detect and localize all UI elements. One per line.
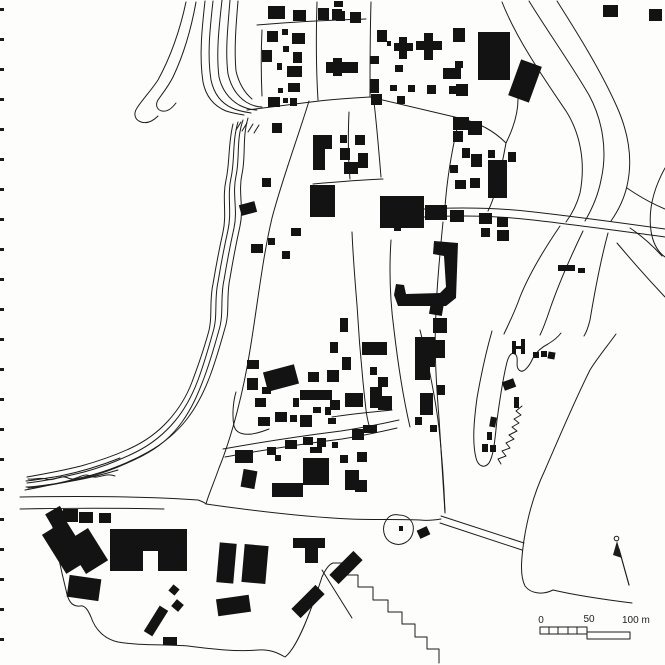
building-footprint — [290, 98, 297, 106]
building-footprint — [275, 412, 287, 422]
street-east-top — [370, 97, 506, 143]
building-footprint — [390, 85, 397, 91]
west-bank-1 — [25, 118, 248, 490]
building-footprint — [342, 357, 351, 370]
building-footprint — [340, 455, 348, 463]
scale-bar-ticks — [549, 627, 577, 634]
building-footprint — [417, 526, 431, 539]
building-footprint — [325, 407, 331, 415]
edge-tick — [0, 338, 4, 341]
river-stem-5 — [235, 1, 252, 99]
building-footprint — [262, 387, 271, 394]
street-top-row — [257, 19, 366, 25]
building-footprint — [471, 154, 482, 167]
river-east-upper-1 — [502, 2, 582, 222]
building-footprint — [453, 117, 469, 130]
road-to-loop — [206, 504, 441, 520]
street-left-col — [261, 30, 262, 96]
building-footprint — [340, 135, 347, 143]
page-edge-tick-marks — [0, 8, 4, 641]
building-footprint — [291, 228, 301, 236]
edge-tick — [0, 218, 4, 221]
river-stem-1 — [201, 1, 244, 115]
building-footprint — [313, 135, 332, 149]
town-plan-map: 0 50 100 m — [0, 0, 665, 665]
river-fork-left-outer — [135, 2, 186, 123]
edge-tick — [0, 578, 4, 581]
building-footprint — [272, 123, 282, 133]
building-footprint — [216, 595, 251, 616]
edge-tick — [0, 548, 4, 551]
building-footprint — [362, 342, 387, 355]
building-footprint — [394, 224, 401, 231]
building-footprint — [649, 9, 662, 21]
building-footprint — [355, 480, 367, 492]
building-footprint — [481, 228, 490, 237]
building-footprint — [468, 121, 482, 135]
building-footprint — [277, 63, 282, 70]
building-footprint — [420, 393, 433, 415]
right-edge-curve — [650, 168, 665, 257]
building-footprint — [479, 213, 492, 224]
building-footprint — [308, 372, 319, 382]
building-footprint — [370, 79, 379, 93]
building-footprint — [450, 165, 458, 173]
building-footprint — [247, 378, 258, 390]
building-footprint — [370, 367, 377, 375]
building-footprint — [514, 397, 519, 408]
building-footprint — [345, 393, 363, 407]
scale-bar-segment-1 — [540, 627, 587, 634]
river-east-upper-3 — [557, 1, 630, 221]
building-footprint — [470, 178, 480, 188]
edge-tick — [0, 488, 4, 491]
edge-tick — [0, 188, 4, 191]
building-footprint — [487, 432, 492, 440]
building-footprint — [340, 318, 348, 332]
building-footprint — [541, 351, 547, 357]
building-footprint — [415, 417, 422, 425]
building-footprint — [456, 84, 468, 96]
building-footprint — [482, 444, 488, 452]
building-footprint — [430, 425, 437, 432]
building-footprint — [478, 32, 510, 80]
building-footprint — [79, 512, 93, 523]
building-footprint — [67, 575, 102, 601]
building-footprint — [334, 1, 343, 7]
edge-tick — [0, 68, 4, 71]
building-footprint — [255, 398, 266, 407]
building-footprint — [488, 160, 507, 198]
building-footprint — [429, 301, 444, 316]
building-footprint — [558, 265, 575, 271]
street-v2-mid — [352, 232, 357, 305]
scale-label-fifty: 50 — [583, 614, 595, 625]
edge-tick — [0, 278, 4, 281]
building-footprint — [433, 318, 447, 333]
street-h180 — [313, 179, 383, 184]
building-footprint — [163, 637, 177, 645]
building-footprint — [313, 407, 321, 413]
field-boundary — [522, 334, 633, 603]
building-footprint — [508, 59, 542, 102]
building-footprint — [63, 509, 78, 522]
building-footprint — [453, 28, 465, 42]
building-footprint — [258, 417, 270, 426]
building-footprint — [268, 238, 275, 245]
building-footprint — [488, 150, 495, 158]
edge-tick — [0, 638, 4, 641]
building-footprint — [291, 585, 324, 618]
road-bottom-1 — [20, 496, 206, 504]
edge-tick — [0, 248, 4, 251]
building-footprint — [489, 417, 497, 428]
building-footprint — [332, 9, 342, 20]
causeway-1 — [441, 516, 524, 543]
building-footprint — [288, 83, 300, 92]
north-arrow — [613, 536, 629, 585]
factory-e-building — [110, 529, 187, 571]
building-footprint — [427, 85, 436, 94]
building-footprint — [275, 455, 281, 461]
building-footprint — [293, 398, 299, 407]
building-footprint — [303, 437, 313, 445]
building-footprint — [262, 50, 272, 62]
building-footprint — [432, 340, 445, 358]
building-footprint — [330, 400, 340, 410]
causeway-2 — [440, 523, 522, 550]
scale-bar: 0 50 100 m — [538, 614, 650, 639]
building-footprint — [300, 390, 332, 400]
edge-tick — [0, 38, 4, 41]
building-footprint — [371, 94, 382, 105]
building-footprint — [293, 52, 302, 63]
building-footprint — [332, 442, 338, 448]
building-footprint — [282, 251, 290, 259]
building-footprint — [378, 377, 388, 387]
pier-zigzag — [498, 406, 522, 464]
edge-tick — [0, 308, 4, 311]
edge-tick — [0, 128, 4, 131]
building-footprint — [303, 458, 329, 485]
t-building — [293, 538, 325, 563]
building-footprint — [300, 415, 312, 427]
building-footprint — [282, 29, 288, 35]
building-footprint — [268, 97, 280, 107]
edge-tick — [0, 398, 4, 401]
building-footprint — [330, 342, 338, 353]
building-footprint — [241, 469, 258, 489]
river-west-lower — [504, 226, 560, 334]
building-footprint — [399, 526, 403, 531]
building-footprint — [533, 352, 539, 358]
building-footprint — [395, 65, 403, 72]
building-footprint — [462, 148, 470, 158]
hook-building — [394, 241, 458, 306]
street-square-west — [316, 2, 318, 100]
building-footprint — [171, 599, 184, 612]
building-footprint — [355, 135, 365, 145]
scale-label-zero: 0 — [538, 615, 544, 626]
building-footprint — [497, 230, 509, 241]
building-footprint — [285, 440, 297, 449]
building-footprint — [408, 85, 415, 92]
building-footprint — [508, 152, 516, 162]
edge-tick — [0, 8, 4, 11]
edge-tick — [0, 458, 4, 461]
building-footprint — [287, 66, 302, 77]
west-bank-4 — [27, 124, 233, 477]
building-footprint — [578, 268, 585, 273]
building-footprint — [443, 68, 461, 79]
building-footprint — [415, 367, 430, 380]
building-footprint — [437, 385, 445, 395]
building-footprint — [387, 41, 391, 46]
building-footprint — [247, 360, 259, 369]
right-fork-1 — [627, 188, 665, 209]
edge-tick — [0, 158, 4, 161]
buildings-layer — [42, 1, 662, 645]
north-arrow-head — [613, 541, 622, 558]
building-footprint — [278, 88, 283, 93]
building-footprint — [370, 56, 379, 64]
building-footprint — [352, 429, 364, 440]
building-footprint — [327, 370, 339, 382]
building-footprint — [328, 418, 336, 424]
building-footprint — [378, 396, 392, 410]
building-footprint — [292, 33, 305, 44]
building-footprint — [283, 46, 289, 52]
cross-building-1 — [394, 37, 413, 59]
street-east-bend-up — [506, 99, 518, 143]
building-footprint — [380, 196, 424, 228]
cross-building-2 — [416, 33, 442, 60]
building-footprint — [350, 12, 361, 23]
river-stem-2 — [209, 1, 251, 113]
building-footprint — [310, 185, 335, 217]
building-footprint — [363, 425, 377, 433]
street-square-south — [319, 97, 370, 101]
scanned-map-page: 0 50 100 m — [0, 0, 665, 665]
building-footprint — [358, 153, 368, 168]
river-fork-left-inner — [157, 2, 196, 111]
building-footprint — [453, 131, 463, 142]
building-footprint — [357, 452, 367, 462]
building-footprint — [283, 98, 288, 103]
building-footprint — [216, 542, 236, 583]
building-footprint — [377, 30, 387, 42]
west-bank-5 — [26, 458, 120, 481]
building-footprint — [397, 96, 405, 104]
edge-tick — [0, 98, 4, 101]
building-footprint — [290, 415, 297, 422]
building-footprint — [502, 378, 516, 391]
building-footprint — [268, 6, 285, 19]
building-footprint — [455, 61, 463, 68]
building-footprint — [344, 162, 358, 174]
building-footprint — [241, 544, 268, 584]
building-footprint — [450, 210, 464, 222]
building-footprint — [235, 450, 253, 463]
street-h415 — [332, 410, 392, 417]
building-footprint — [317, 438, 326, 447]
road-bottom-2 — [20, 508, 164, 509]
building-footprint — [262, 178, 271, 187]
building-footprint — [455, 180, 466, 189]
north-arrow-circle — [614, 536, 619, 541]
building-footprint — [272, 483, 303, 497]
building-footprint — [267, 447, 276, 455]
h-building-pier — [512, 339, 525, 354]
building-footprint — [425, 205, 447, 220]
edge-tick — [0, 428, 4, 431]
building-footprint — [310, 447, 322, 453]
edge-tick — [0, 368, 4, 371]
edge-tick — [0, 608, 4, 611]
street-block1-east — [374, 102, 381, 177]
edge-tick — [0, 518, 4, 521]
river-hatch-marks — [236, 122, 259, 133]
street-v3 — [390, 240, 410, 427]
building-footprint — [168, 584, 179, 595]
building-footprint — [547, 351, 555, 359]
church — [326, 58, 358, 76]
building-footprint — [603, 5, 618, 17]
building-footprint — [267, 31, 278, 42]
building-footprint — [293, 10, 306, 21]
building-footprint — [497, 217, 508, 227]
road-fork-se — [630, 228, 662, 256]
scale-label-hundred-m: 100 m — [622, 615, 650, 626]
channel-outer-lower — [584, 233, 608, 336]
building-footprint — [490, 445, 496, 452]
scale-bar-segment-2 — [587, 632, 630, 639]
west-bank-3 — [27, 122, 238, 483]
building-footprint — [251, 244, 263, 253]
building-footprint — [318, 8, 329, 20]
building-footprint — [99, 513, 111, 523]
building-footprint — [340, 148, 350, 160]
street-v4-lower — [435, 222, 445, 513]
building-footprint — [144, 606, 168, 637]
building-footprint — [313, 149, 325, 170]
